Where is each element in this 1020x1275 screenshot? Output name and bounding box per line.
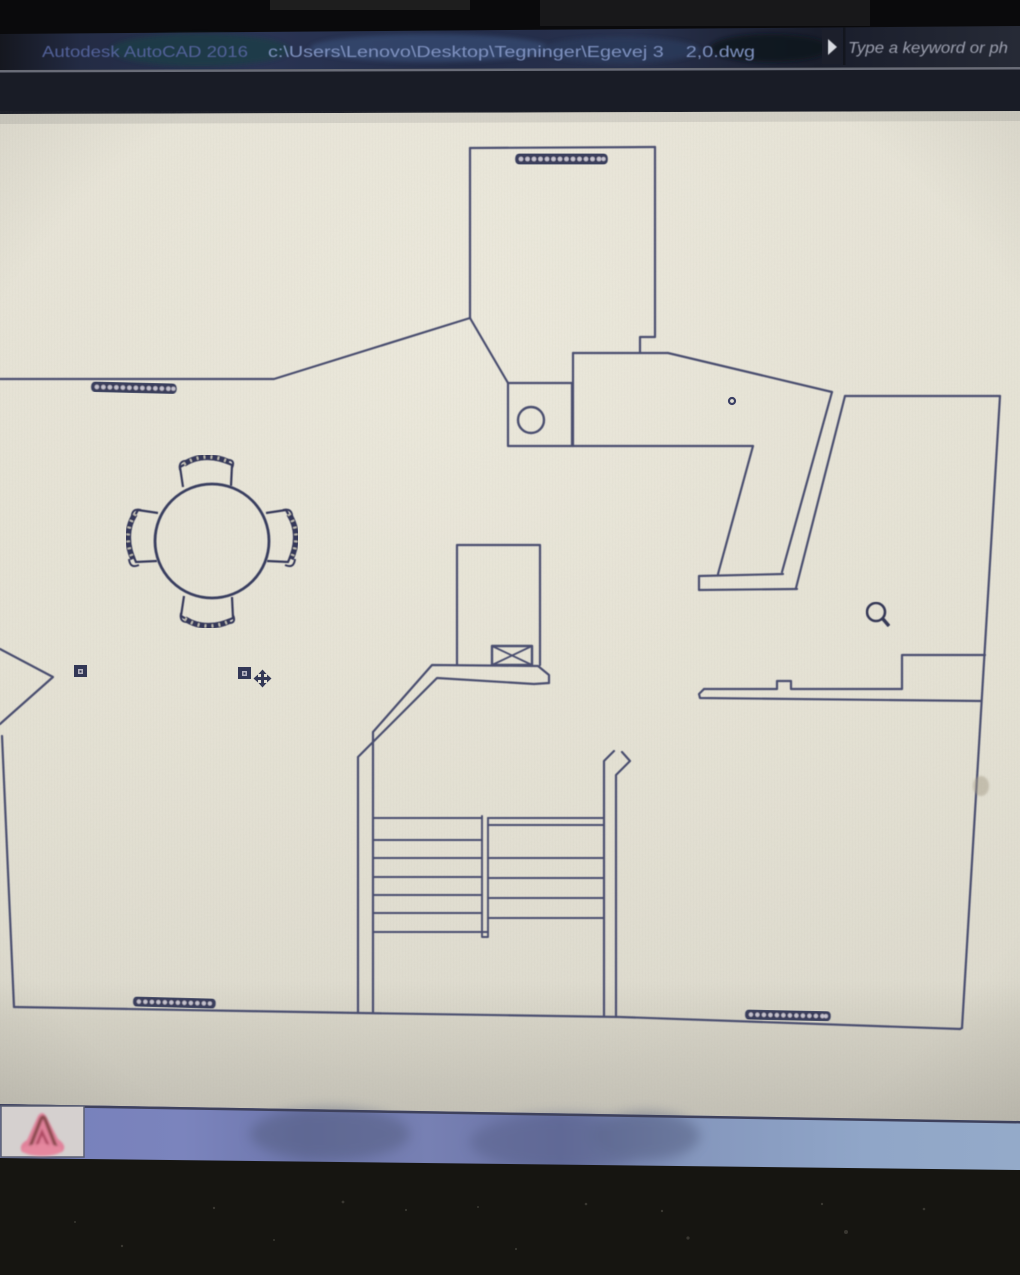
svg-text:Autodesk AutoCAD 2016: Autodesk AutoCAD 2016 bbox=[42, 44, 248, 61]
svg-text:Type a keyword or ph: Type a keyword or ph bbox=[848, 40, 1008, 57]
svg-text:c:\Users\Lenovo\Desktop\Tegnin: c:\Users\Lenovo\Desktop\Tegninger\Egevej… bbox=[268, 44, 755, 61]
